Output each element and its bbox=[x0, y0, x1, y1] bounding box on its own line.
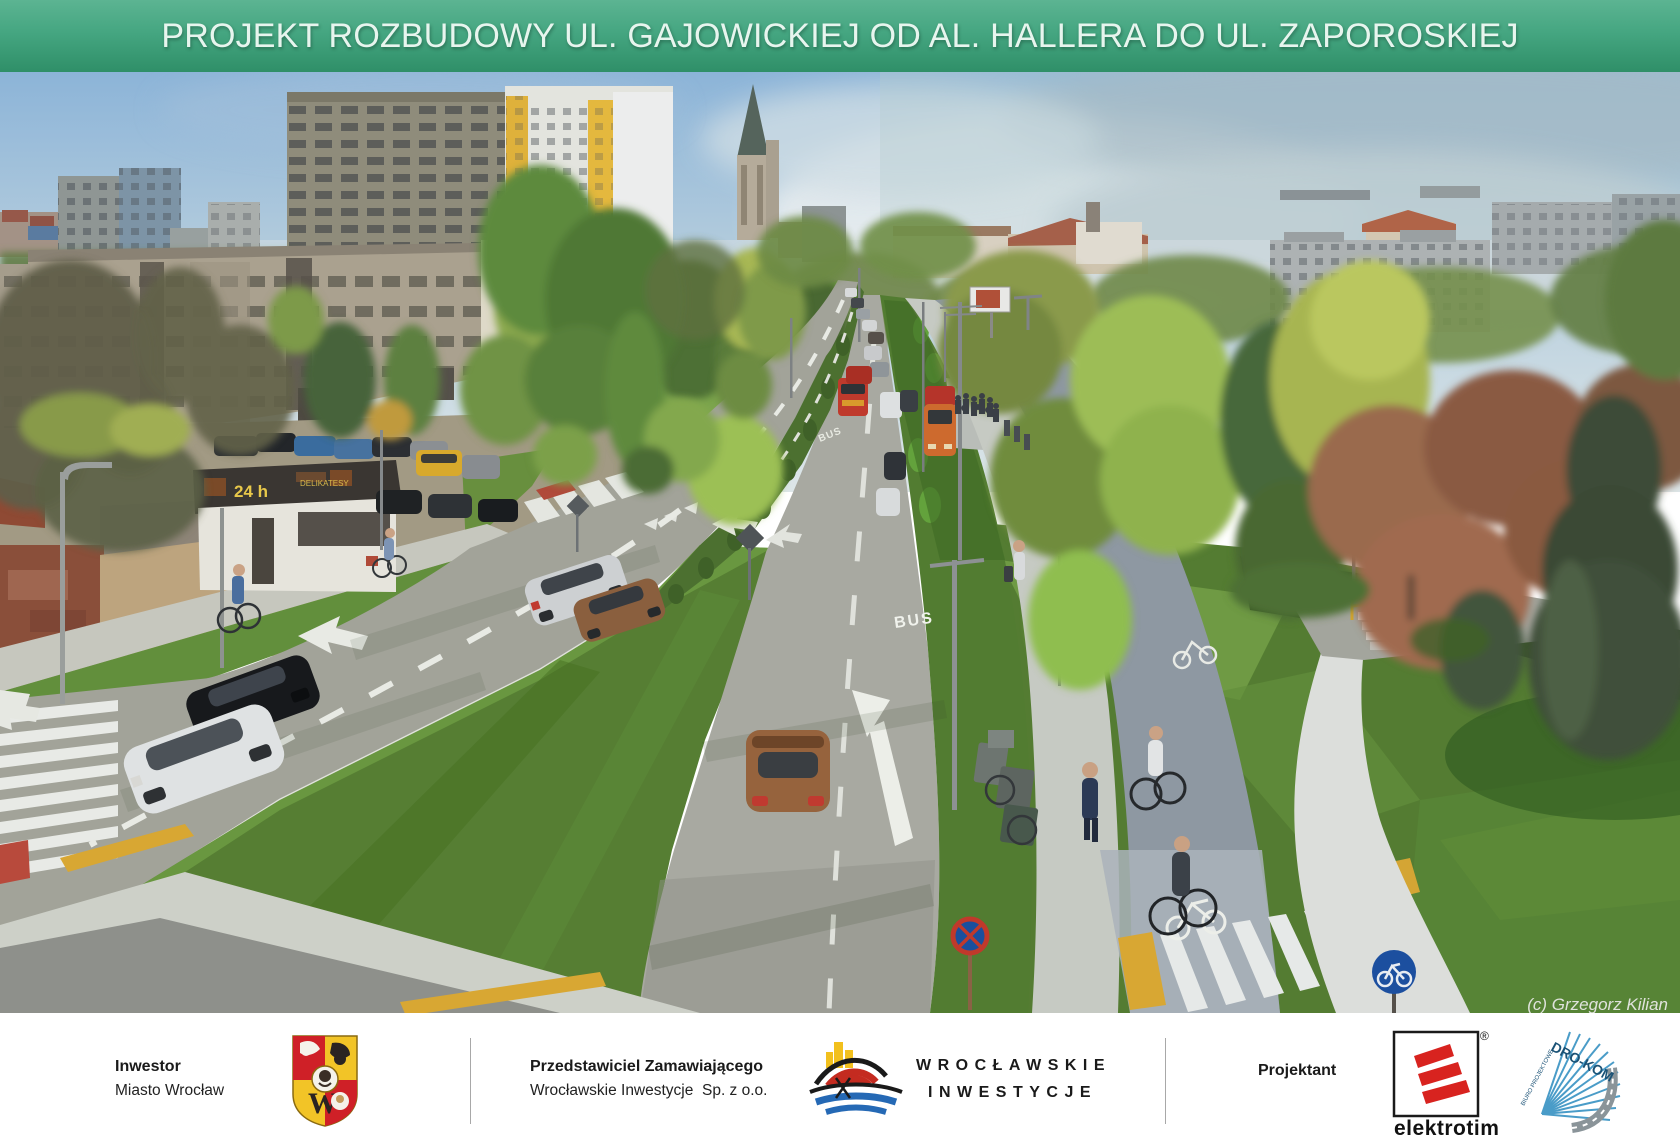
svg-text:®: ® bbox=[1480, 1029, 1489, 1043]
svg-text:elektrotim: elektrotim bbox=[1394, 1117, 1499, 1138]
svg-text:(c) Grzegorz Kilian: (c) Grzegorz Kilian bbox=[1527, 995, 1668, 1013]
svg-text:DELIKATESY: DELIKATESY bbox=[300, 479, 349, 488]
svg-text:24 h: 24 h bbox=[234, 482, 268, 501]
